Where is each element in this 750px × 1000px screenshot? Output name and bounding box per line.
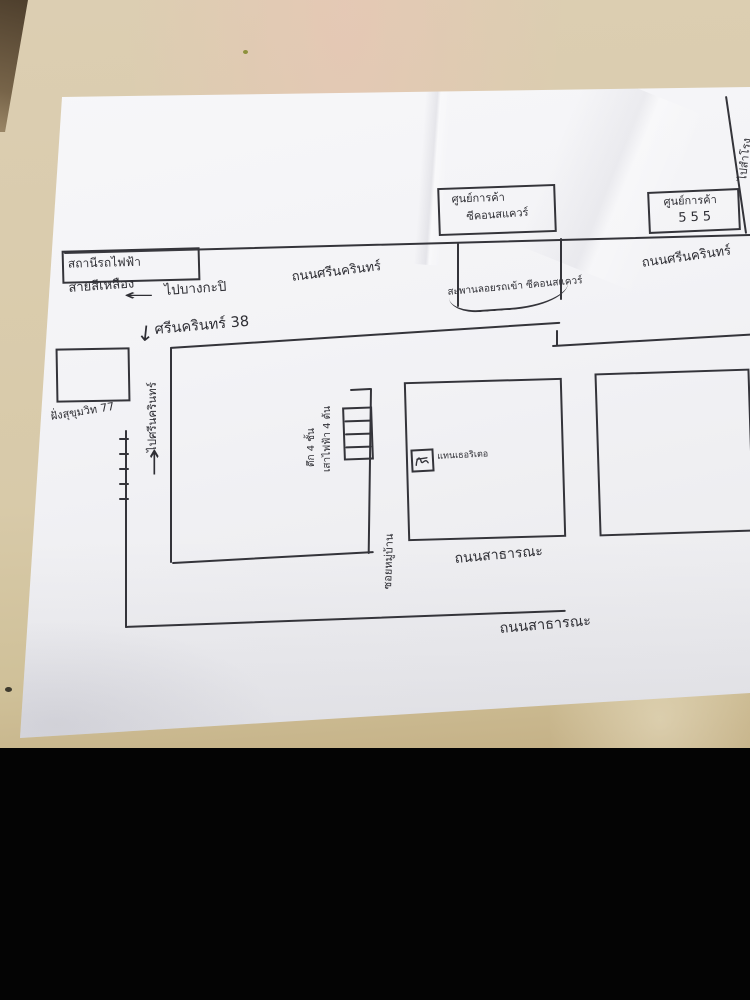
sukhumvit-77-label: ฝั่งสุขุมวิท 77 xyxy=(50,401,115,424)
soi-tick xyxy=(119,438,129,440)
village-soi-label: ซอยหมู่บ้าน xyxy=(382,533,397,589)
left-block-bottom-edge xyxy=(172,551,374,564)
paper-shading xyxy=(0,540,750,740)
road-srinakarin-bottom-edge-right xyxy=(552,333,750,347)
paper-crease xyxy=(414,89,452,265)
soi-tick xyxy=(119,468,129,470)
station-label: สถานีรถไฟฟ้า xyxy=(68,256,141,272)
rowhouse-ladder xyxy=(342,406,374,460)
to-srinakarin-label: ไปศรีนครินทร์ xyxy=(146,382,159,452)
soi-tick xyxy=(119,453,129,455)
mall-555-label-line2: 555 xyxy=(678,210,715,227)
black-letterbox-bar xyxy=(0,748,750,1000)
left-block-left-edge xyxy=(170,347,172,563)
soi-38-label: ศรีนครินทร์ 38 xyxy=(154,314,250,339)
marker-box xyxy=(410,448,434,472)
arrow-left-icon: ← xyxy=(124,287,154,304)
power-poles-note: เสาไฟฟ้า 4 ต้น xyxy=(322,406,334,472)
road-srinakarin-label-left: ถนนศรีนครินทร์ xyxy=(291,260,382,286)
to-bangkapi-label: ไปบางกะปิ xyxy=(164,280,227,300)
soi-tick xyxy=(119,498,129,500)
paper-shading xyxy=(0,620,280,750)
photo-of-hand-drawn-map: สถานีรถไฟฟ้า สายสีเหลือง ศูนย์การค้า ซีค… xyxy=(0,0,750,1000)
public-road-label-1: ถนนสาธารณะ xyxy=(454,543,544,567)
mall-555-label-line1: ศูนย์การค้า xyxy=(663,194,717,209)
soi-tick xyxy=(119,483,129,485)
mall-555-box: ศูนย์การค้า 555 xyxy=(647,188,741,234)
right-block xyxy=(594,369,750,537)
building-4floors-note: ตึก 4 ชั้น xyxy=(306,428,318,467)
seacon-square-box: ศูนย์การค้า ซีคอนสแควร์ xyxy=(437,184,557,236)
table-speck-green xyxy=(243,50,248,54)
table-shadow-wedge xyxy=(0,0,28,132)
ladder-rung xyxy=(345,433,371,436)
left-block-top-stub xyxy=(350,388,371,391)
seacon-label-line2: ซีคอนสแควร์ xyxy=(466,207,529,224)
to-samrong-label: ไปสำโรง xyxy=(737,138,750,182)
ladder-rung xyxy=(345,446,371,449)
road-edge-connector xyxy=(556,330,558,346)
marker-scribble-icon xyxy=(413,451,433,471)
soi-left-edge xyxy=(125,430,127,628)
table-speck-dark xyxy=(5,687,12,692)
ladder-rung xyxy=(345,420,371,423)
road-srinakarin-label-right: ถนนศรีนครินทร์ xyxy=(641,244,732,271)
left-small-building-box xyxy=(56,347,131,402)
arrow-down-icon: ↓ xyxy=(135,321,155,347)
public-road-label-2: ถนนสาธารณะ xyxy=(499,613,592,638)
seacon-label-line1: ศูนย์การค้า xyxy=(451,192,505,206)
